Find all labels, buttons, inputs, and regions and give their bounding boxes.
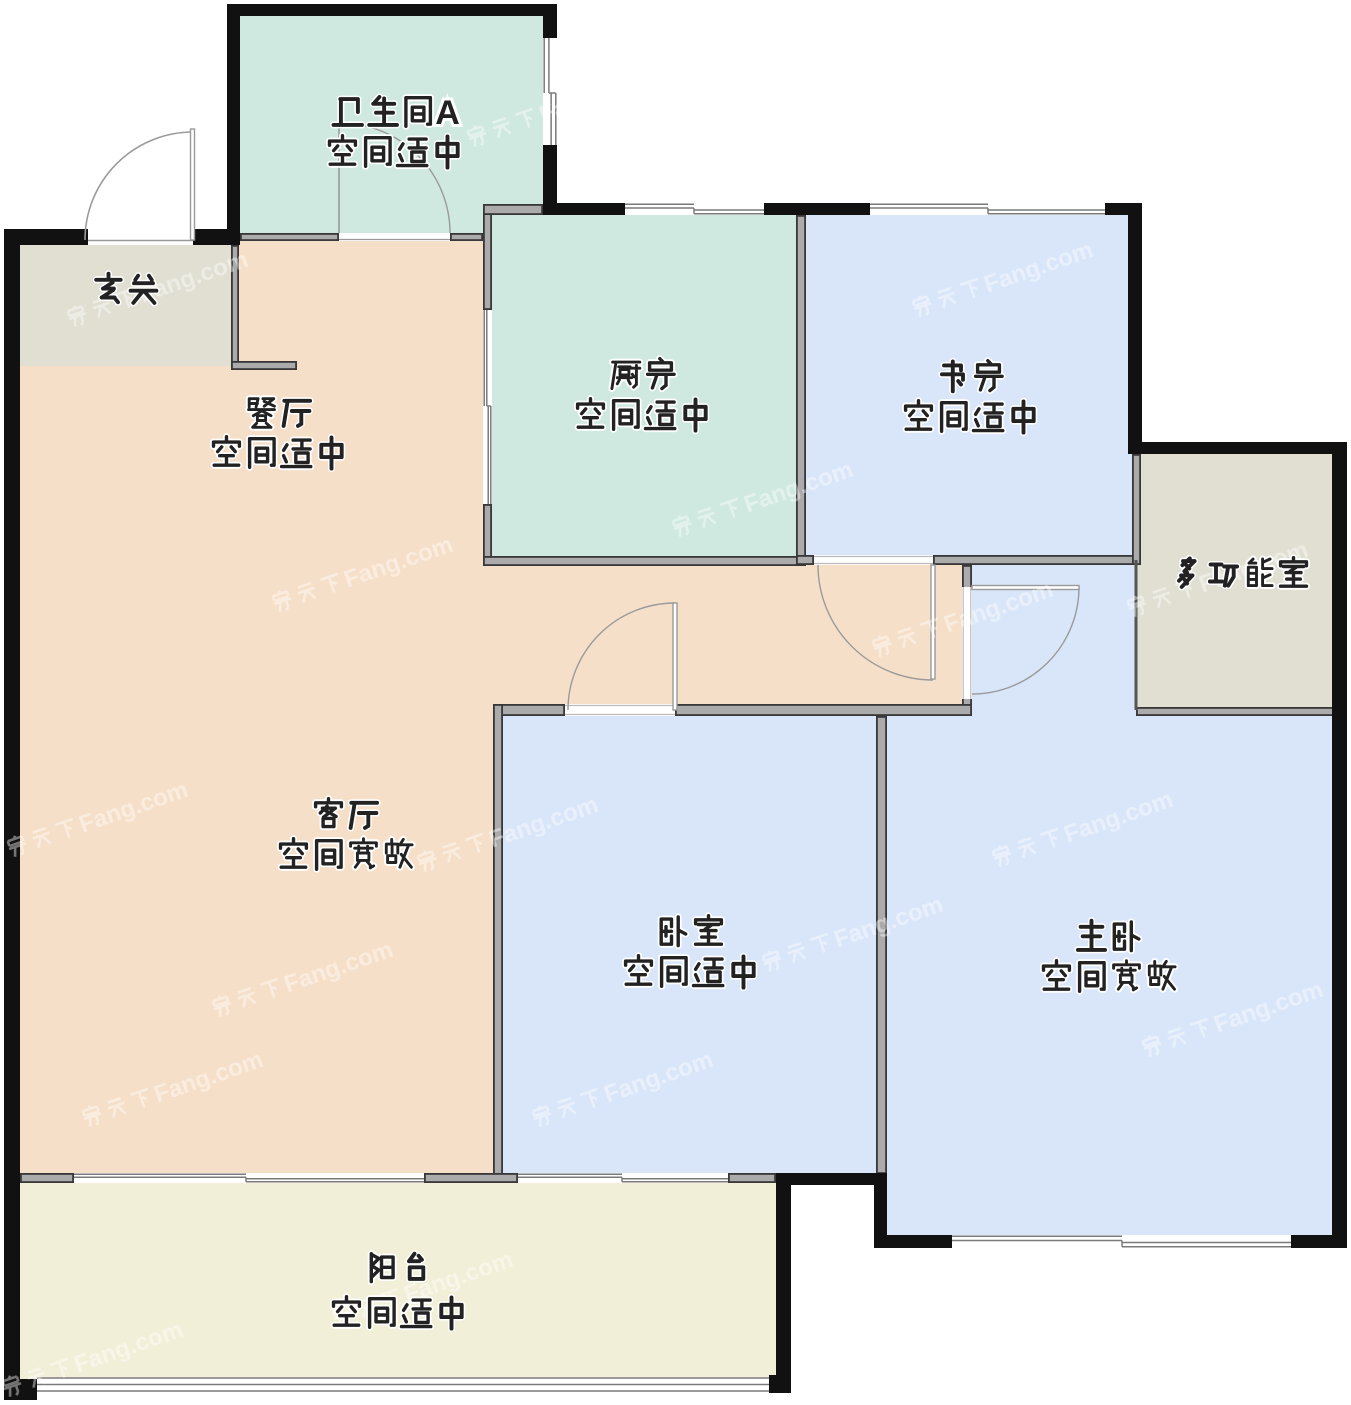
svg-text:A: A bbox=[435, 94, 460, 132]
